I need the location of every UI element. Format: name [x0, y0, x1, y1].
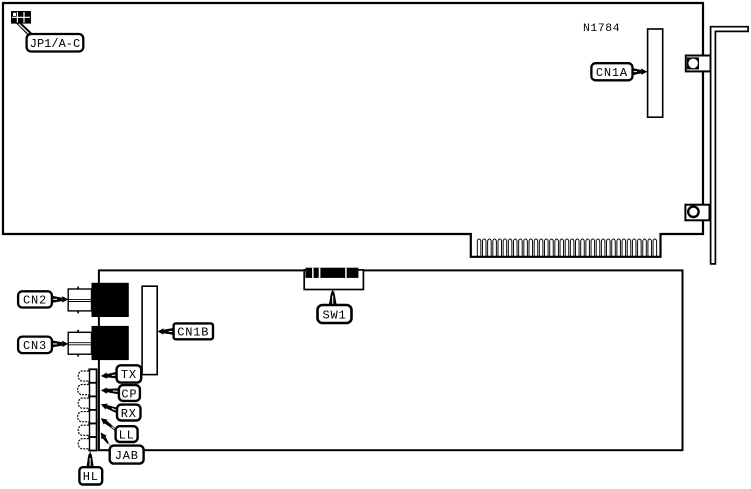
svg-text:CN1B: CN1B [177, 326, 209, 340]
svg-text:JP1/A-C: JP1/A-C [30, 37, 80, 51]
svg-text:CN1A: CN1A [596, 66, 628, 80]
svg-text:JAB: JAB [115, 449, 139, 463]
svg-text:N1784: N1784 [583, 23, 620, 35]
svg-text:CN2: CN2 [23, 294, 47, 308]
svg-text:TX: TX [121, 368, 137, 382]
svg-text:LL: LL [119, 428, 135, 442]
svg-text:RX: RX [121, 407, 137, 421]
svg-text:SW1: SW1 [322, 308, 346, 322]
svg-text:HL: HL [83, 470, 99, 484]
svg-text:CN3: CN3 [23, 339, 47, 353]
svg-text:CP: CP [121, 387, 137, 401]
